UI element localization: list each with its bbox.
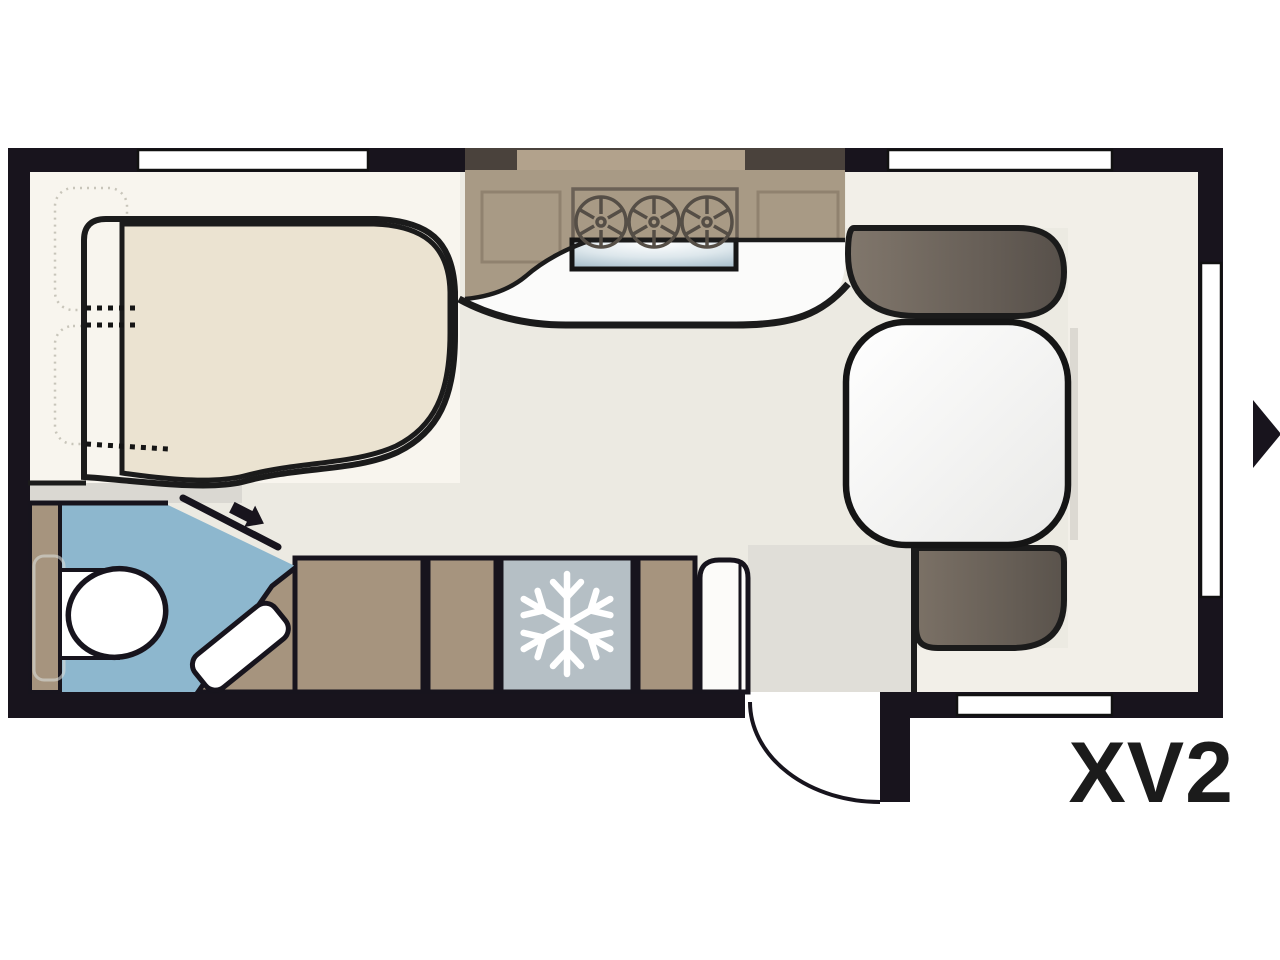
door-swing-arc <box>750 702 880 802</box>
dinette-seat-front <box>848 228 1064 316</box>
floor-entry-vestibule <box>748 545 914 692</box>
entry-door <box>750 692 910 802</box>
window-front-left <box>138 150 368 170</box>
wardrobe-cabinet-1 <box>295 558 423 692</box>
wall-left <box>8 148 30 718</box>
floor-dinette-bottom <box>905 648 1198 692</box>
wardrobe-cabinet-3 <box>638 558 695 692</box>
wardrobe-cabinet-2 <box>428 558 496 692</box>
window-right-side <box>1201 263 1221 597</box>
window-rear <box>957 695 1112 715</box>
bathroom <box>28 483 295 695</box>
wall-bottom-left <box>8 692 745 718</box>
bed-mattress <box>122 224 450 480</box>
floorplan-canvas: XV2 <box>0 0 1280 960</box>
dinette-table <box>846 322 1068 545</box>
kitchen-covered-window <box>517 150 745 170</box>
model-label: XV2 <box>1068 730 1234 816</box>
kitchen <box>459 148 848 325</box>
bed <box>55 188 455 485</box>
entry-door-leaf <box>880 692 910 802</box>
floor-dinette-right <box>1068 172 1198 692</box>
entry-direction-arrow-icon <box>1253 400 1280 468</box>
dinette-seat-rear <box>916 548 1064 648</box>
window-front-right <box>888 150 1112 170</box>
bottom-units <box>295 558 748 692</box>
